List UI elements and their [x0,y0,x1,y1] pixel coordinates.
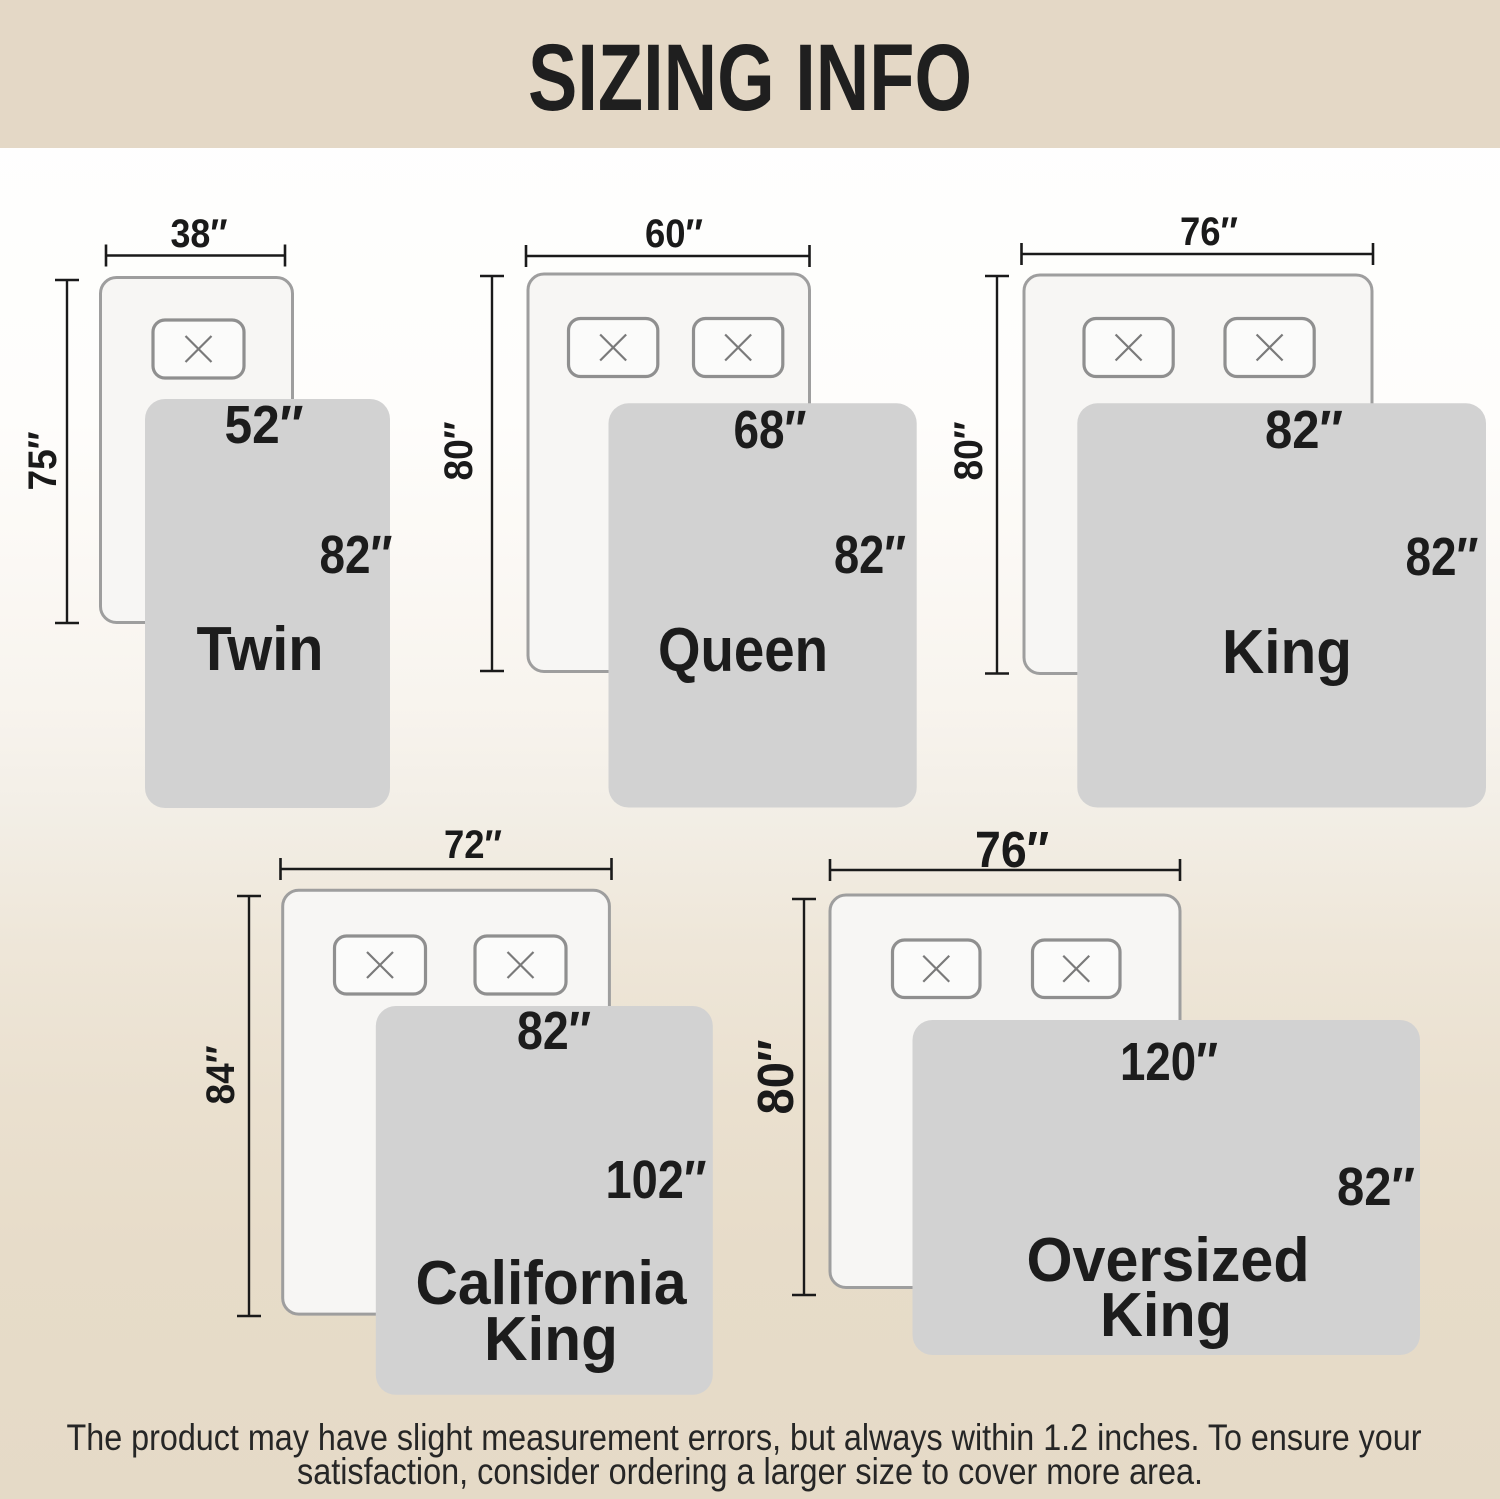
svg-text:80″: 80″ [437,422,481,481]
svg-text:75″: 75″ [21,432,65,491]
svg-text:76″: 76″ [1180,210,1238,254]
svg-text:80″: 80″ [947,422,991,481]
svg-text:King: King [1100,1281,1232,1350]
svg-text:76″: 76″ [975,821,1049,878]
svg-text:Queen: Queen [658,616,828,685]
svg-text:82″: 82″ [834,525,906,585]
svg-text:82″: 82″ [1265,400,1343,460]
svg-text:120″: 120″ [1120,1032,1218,1092]
svg-text:82″: 82″ [320,525,393,585]
svg-text:38″: 38″ [171,212,228,256]
svg-text:52″: 52″ [225,395,304,455]
svg-text:SIZING INFO: SIZING INFO [528,25,972,131]
svg-text:80″: 80″ [747,1040,804,1115]
svg-text:84″: 84″ [199,1046,243,1105]
svg-text:82″: 82″ [517,1001,591,1061]
svg-text:102″: 102″ [606,1150,707,1210]
svg-text:68″: 68″ [734,400,807,460]
svg-text:King: King [1222,618,1352,687]
svg-text:72″: 72″ [444,823,502,867]
svg-text:60″: 60″ [645,212,703,256]
svg-text:82″: 82″ [1406,527,1479,587]
svg-text:82″: 82″ [1337,1157,1415,1217]
svg-text:Twin: Twin [197,615,324,684]
svg-text:satisfaction, consider orderin: satisfaction, consider ordering a larger… [297,1451,1203,1492]
svg-text:King: King [484,1305,618,1374]
